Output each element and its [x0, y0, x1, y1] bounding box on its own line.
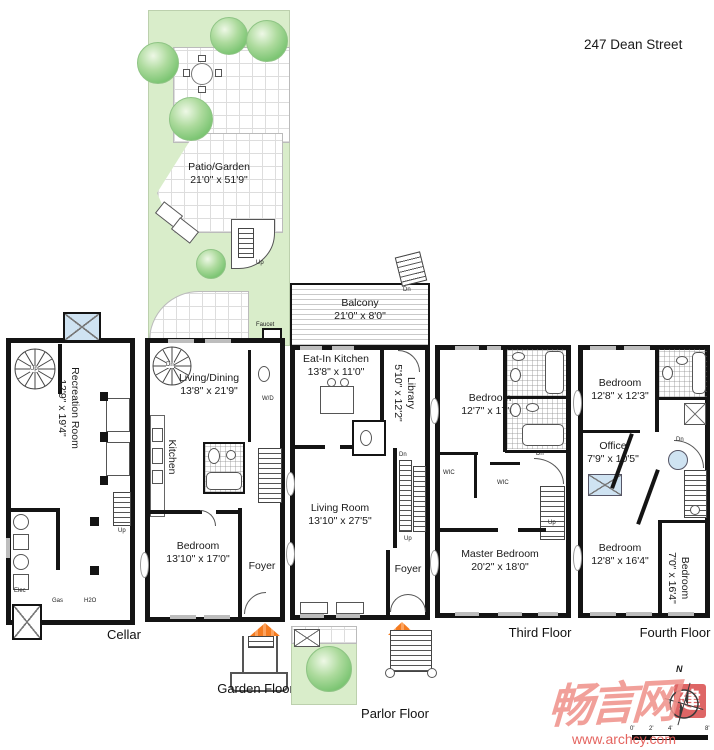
window — [590, 346, 616, 350]
floor-label-parlor: Parlor Floor — [350, 706, 440, 721]
bathtub-icon — [545, 351, 564, 394]
room-label-living-dining: Living/Dining 13'8" x 21'9" — [163, 372, 255, 398]
shower-icon — [684, 403, 706, 425]
stairs-icon — [395, 251, 427, 286]
tree-icon — [169, 97, 213, 141]
room-dims: 7'0" x 16'4" — [665, 536, 678, 620]
patio-garden-area: Up Patio/Garden 21'0" x 51'9" — [148, 10, 290, 346]
kitchen-island — [320, 386, 354, 414]
dn-label: Dn — [676, 437, 684, 443]
tree-icon — [306, 646, 352, 692]
wall — [340, 445, 354, 449]
up-label: Up — [548, 520, 556, 526]
wall — [380, 348, 384, 424]
wall — [150, 510, 202, 514]
elec-label: Elec — [14, 588, 26, 594]
bow-window — [140, 552, 149, 578]
page-title: 247 Dean Street — [584, 37, 682, 52]
patio-chair-icon — [183, 69, 190, 77]
washer-icon — [13, 514, 29, 530]
watermark-brand: 畅言网 — [546, 661, 714, 737]
room-name: Bedroom — [585, 377, 655, 390]
room-label-garden-bedroom: Bedroom 13'10" x 17'0" — [158, 540, 238, 566]
room-dims: 20'2" x 18'0" — [450, 561, 550, 574]
toilet-icon — [258, 366, 270, 382]
room-label-fourth-bedroom-side: Bedroom 7'0" x 16'4" — [667, 536, 691, 620]
window — [170, 615, 196, 619]
room-label-fourth-bedroom-bottom: Bedroom 12'8" x 16'4" — [585, 542, 655, 568]
column — [90, 517, 99, 526]
room-name: Foyer — [240, 560, 284, 573]
window-seat — [300, 602, 328, 614]
window — [455, 612, 479, 616]
room-label-office: Office 7'9" x 10'5" — [582, 440, 644, 466]
bow-window — [286, 472, 295, 496]
room-dims: 7'9" x 10'5" — [582, 453, 644, 466]
window — [205, 339, 231, 343]
sink-icon — [512, 352, 525, 361]
floor-label-third: Third Floor — [494, 625, 586, 640]
room-name: Kitchen — [165, 436, 178, 478]
stoop-stairs-icon — [390, 630, 432, 672]
floor-label-cellar: Cellar — [92, 627, 156, 642]
room-dims: 12'8" x 12'3" — [585, 390, 655, 403]
room-name: Living/Dining — [163, 372, 255, 385]
wall — [393, 448, 397, 548]
toilet-icon — [208, 448, 220, 464]
window — [487, 346, 501, 350]
floor-label-garden: Garden Floor — [208, 681, 303, 696]
bathtub-icon — [522, 424, 564, 446]
room-label-master-bedroom: Master Bedroom 20'2" x 18'0" — [450, 548, 550, 574]
window — [204, 615, 230, 619]
wall — [440, 528, 498, 532]
up-label: Up — [30, 366, 38, 372]
utility-fixture — [13, 534, 29, 550]
bow-window — [430, 398, 439, 424]
bathtub-icon — [206, 472, 242, 490]
window — [590, 612, 616, 616]
window — [332, 346, 354, 350]
powder-room — [352, 420, 386, 456]
newel-post-icon — [427, 668, 437, 678]
window — [668, 612, 694, 616]
window-seat — [336, 602, 364, 614]
wic-label: WIC — [443, 470, 455, 476]
patio-chair-icon — [215, 69, 222, 77]
tree-icon — [196, 249, 226, 279]
wall — [658, 520, 708, 523]
wall — [295, 445, 325, 449]
up-label: Up — [404, 536, 412, 542]
bow-window — [286, 542, 295, 566]
window — [336, 614, 360, 618]
wall — [518, 528, 546, 532]
stairs-icon — [413, 466, 426, 532]
window — [626, 612, 652, 616]
bow-window — [573, 390, 582, 416]
tree-icon — [137, 42, 179, 84]
room-name: Bedroom — [585, 542, 655, 555]
cellar-entry-hatch — [12, 604, 42, 640]
wall — [100, 392, 108, 401]
awning-icon — [250, 623, 280, 636]
window — [538, 612, 558, 616]
window — [624, 346, 650, 350]
room-name: Master Bedroom — [450, 548, 550, 561]
wd-label: W/D — [262, 396, 274, 402]
closet — [106, 398, 130, 432]
room-label-parlor-foyer: Foyer — [386, 563, 430, 576]
wall — [100, 476, 108, 485]
floor-label-fourth: Fourth Floor — [634, 625, 714, 640]
room-name: Library — [404, 354, 417, 432]
stairs-icon — [238, 228, 254, 258]
sink-icon — [690, 505, 700, 515]
toilet-icon — [662, 366, 673, 380]
room-name: Living Room — [300, 502, 380, 515]
stair-skylight-icon — [668, 450, 688, 470]
stairs-icon — [258, 448, 282, 503]
wall — [659, 397, 707, 400]
room-label-garden-foyer: Foyer — [240, 560, 284, 573]
room-name: Balcony — [310, 297, 410, 310]
column — [90, 566, 99, 575]
window — [300, 346, 322, 350]
room-label-recreation: Recreation Room 12'9" x 19'4" — [57, 352, 81, 464]
dn-label: Dn — [166, 362, 174, 368]
wall — [490, 462, 520, 465]
dn-label: Dn — [536, 451, 544, 457]
sink-icon — [526, 403, 539, 412]
wall — [474, 452, 477, 498]
window — [455, 346, 479, 350]
room-dims: 5'10" x 12'2" — [391, 354, 404, 432]
wall — [658, 523, 662, 615]
room-dims: 21'0" x 8'0" — [310, 310, 410, 323]
stool-icon — [340, 378, 349, 387]
gas-label: Gas — [52, 598, 63, 604]
room-dims: 13'8" x 11'0" — [296, 366, 376, 379]
skylight-icon — [63, 312, 101, 342]
room-label-eat-in-kitchen: Eat-In Kitchen 13'8" x 11'0" — [296, 353, 376, 379]
patio-chair-icon — [198, 86, 206, 93]
wic-label: WIC — [497, 480, 509, 486]
room-name: Eat-In Kitchen — [296, 353, 376, 366]
sink-icon — [676, 356, 688, 365]
room-name: Office — [582, 440, 644, 453]
bow-window — [430, 550, 439, 576]
wall — [248, 350, 251, 442]
room-dims: 12'9" x 19'4" — [55, 352, 68, 464]
window — [300, 614, 324, 618]
room-label-balcony: Balcony 21'0" x 8'0" — [310, 297, 410, 323]
room-name: Bedroom — [158, 540, 238, 553]
stairs-icon — [113, 492, 131, 526]
dn-label: Dn — [399, 452, 407, 458]
wall — [216, 510, 238, 514]
closet — [106, 442, 130, 476]
newel-post-icon — [385, 668, 395, 678]
planter-box — [294, 629, 320, 647]
room-name: Recreation Room — [68, 352, 81, 464]
toilet-icon — [510, 368, 521, 382]
window — [498, 612, 522, 616]
wall — [10, 508, 60, 512]
room-dims: 12'8" x 16'4" — [585, 555, 655, 568]
toilet-icon — [510, 403, 521, 417]
stairs-icon — [248, 636, 274, 648]
room-dims: 21'0" x 51'9" — [174, 174, 264, 187]
garden-stair-enclosure: Up — [231, 219, 275, 269]
garden-entry-stoop — [242, 636, 278, 674]
h2o-label: H2O — [84, 598, 96, 604]
tree-icon — [210, 17, 248, 55]
floorplan-page: 247 Dean Street Up Patio/Garden 21'0" x … — [0, 0, 714, 750]
room-label-kitchen: Kitchen — [162, 436, 178, 478]
wall — [100, 432, 108, 442]
room-dims: 13'10" x 27'5" — [300, 515, 380, 528]
room-label-living-room: Living Room 13'10" x 27'5" — [300, 502, 380, 528]
room-name: Patio/Garden — [174, 161, 264, 174]
watermark-url: www.archcy.com — [572, 731, 676, 747]
room-label-fourth-bedroom-top: Bedroom 12'8" x 12'3" — [585, 377, 655, 403]
tree-icon — [246, 20, 288, 62]
dryer-icon — [13, 554, 29, 570]
room-label-patio: Patio/Garden 21'0" x 51'9" — [174, 161, 264, 187]
wall — [440, 452, 478, 455]
room-label-library: Library 5'10" x 12'2" — [393, 354, 417, 432]
wall — [56, 508, 60, 570]
faucet-label: Faucet — [256, 322, 274, 328]
toilet-icon — [360, 430, 372, 446]
patio-table-icon — [191, 63, 213, 85]
room-name: Foyer — [386, 563, 430, 576]
up-label: Up — [118, 528, 126, 534]
window — [168, 339, 194, 343]
bathtub-icon — [692, 352, 706, 394]
room-dims: 13'10" x 17'0" — [158, 553, 238, 566]
sink-icon — [226, 450, 236, 460]
stool-icon — [327, 378, 336, 387]
patio-chair-icon — [198, 55, 206, 62]
room-name: Bedroom — [678, 536, 691, 620]
stairs-icon — [399, 460, 412, 532]
bow-window — [573, 545, 582, 571]
window — [6, 538, 10, 558]
dn-label: Dn — [403, 287, 411, 293]
room-dims: 13'8" x 21'9" — [163, 385, 255, 398]
up-label: Up — [256, 260, 264, 266]
